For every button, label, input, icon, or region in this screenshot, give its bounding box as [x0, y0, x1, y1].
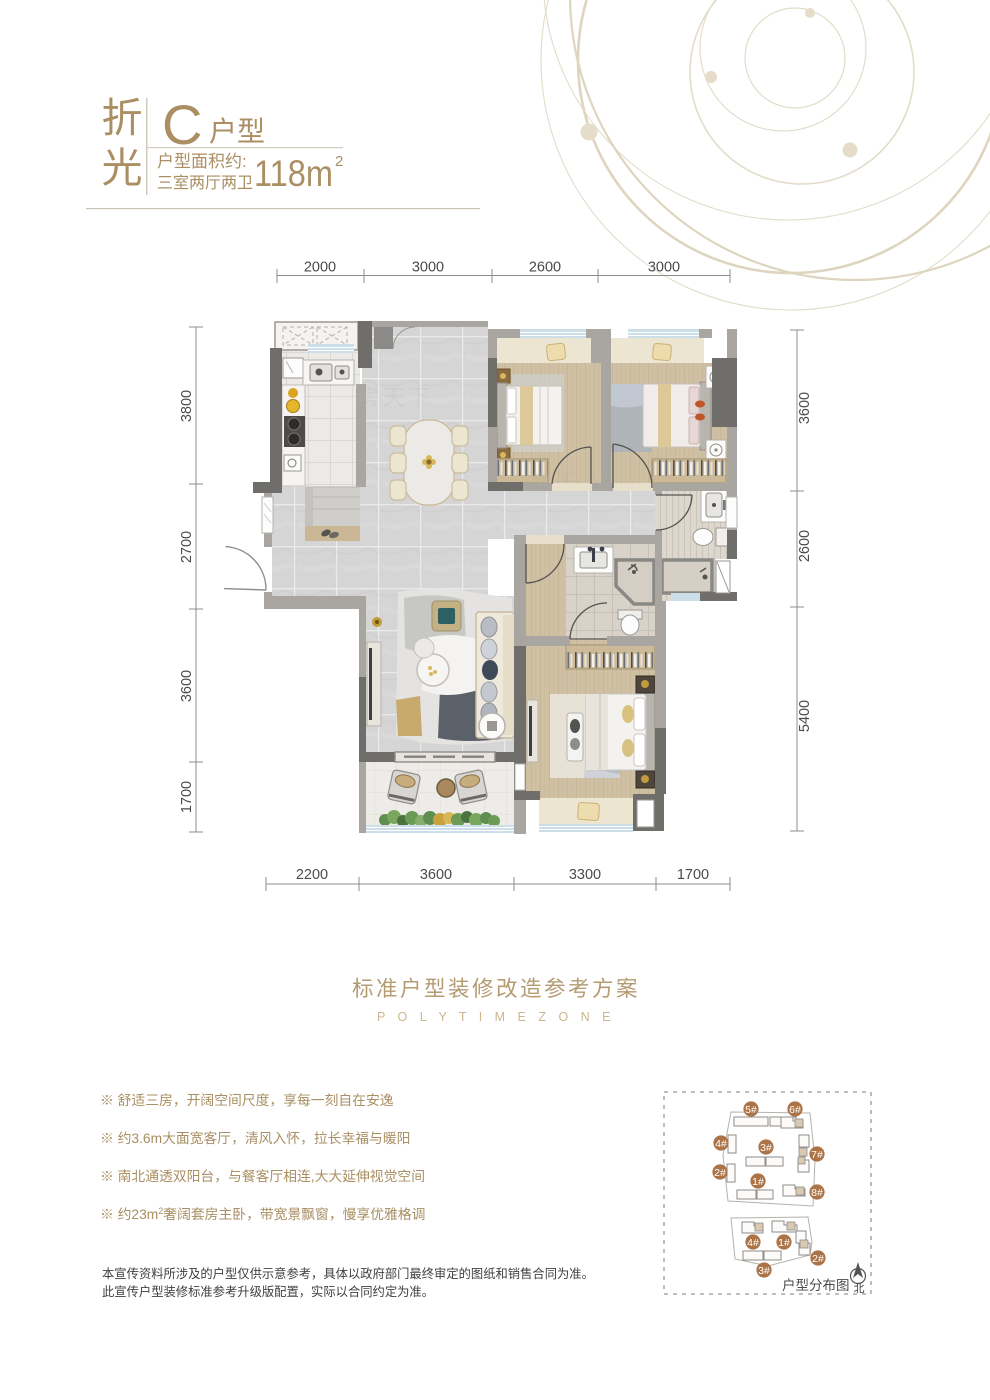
svg-text:2600: 2600 [529, 260, 561, 276]
svg-text:房天下: 房天下 [530, 470, 605, 495]
svg-text:标准户型装修改造参考方案: 标准户型装修改造参考方案 [352, 977, 640, 1001]
svg-text:C: C [162, 93, 202, 156]
svg-text:※ 舒适三房，开阔空间尺度，享每一刻自在安逸: ※ 舒适三房，开阔空间尺度，享每一刻自在安逸 [100, 1092, 394, 1108]
svg-text:户型: 户型 [209, 116, 265, 147]
svg-text:※ 南北通透双阳台，与餐客厅相连,大大延伸视觉空间: ※ 南北通透双阳台，与餐客厅相连,大大延伸视觉空间 [100, 1168, 425, 1184]
svg-text:1#: 1# [778, 1237, 790, 1249]
svg-text:8#: 8# [811, 1187, 823, 1199]
svg-text:3000: 3000 [648, 260, 680, 276]
svg-text:3#: 3# [758, 1265, 770, 1277]
svg-text:2#: 2# [812, 1253, 824, 1265]
svg-text:2: 2 [335, 153, 343, 170]
svg-text:户型分布图: 户型分布图 [782, 1277, 850, 1293]
svg-text:1700: 1700 [179, 781, 195, 813]
svg-text:三室两厅两卫: 三室两厅两卫 [157, 174, 253, 192]
svg-text:2000: 2000 [304, 260, 336, 276]
svg-text:3#: 3# [760, 1142, 772, 1154]
svg-text:北: 北 [854, 1282, 865, 1295]
svg-text:2200: 2200 [296, 867, 328, 883]
svg-text:3800: 3800 [179, 390, 195, 422]
svg-text:4#: 4# [715, 1138, 727, 1150]
svg-text:2#: 2# [714, 1167, 726, 1179]
svg-text:2700: 2700 [179, 531, 195, 563]
svg-text:3600: 3600 [420, 867, 452, 883]
svg-text:P O L Y T I M E Z O N E: P O L Y T I M E Z O N E [377, 1010, 615, 1024]
svg-text:5400: 5400 [797, 700, 813, 732]
svg-text:6#: 6# [789, 1104, 801, 1116]
svg-text:118m: 118m [254, 153, 333, 194]
svg-text:户型面积约:: 户型面积约: [157, 152, 247, 171]
svg-text:房天下: 房天下 [358, 385, 433, 410]
svg-text:光: 光 [102, 145, 143, 191]
svg-text:5#: 5# [745, 1104, 757, 1116]
svg-text:3300: 3300 [569, 867, 601, 883]
svg-text:3600: 3600 [797, 392, 813, 424]
svg-text:本宣传资料所涉及的户型仅供示意参考，具体以政府部门最终审定的: 本宣传资料所涉及的户型仅供示意参考，具体以政府部门最终审定的图纸和销售合同为准。 [102, 1266, 594, 1281]
svg-text:※ 约3.6m大面宽客厅，清风入怀，拉长幸福与暖阳: ※ 约3.6m大面宽客厅，清风入怀，拉长幸福与暖阳 [100, 1130, 410, 1146]
svg-text:2600: 2600 [797, 530, 813, 562]
svg-text:4#: 4# [747, 1237, 759, 1249]
svg-text:※ 约23m2奢阔套房主卧，带宽景飘窗，慢享优雅格调: ※ 约23m2奢阔套房主卧，带宽景飘窗，慢享优雅格调 [100, 1206, 425, 1222]
svg-text:折: 折 [102, 95, 143, 141]
svg-text:此宣传户型装修标准参考升级版配置，实际以合同约定为准。: 此宣传户型装修标准参考升级版配置，实际以合同约定为准。 [102, 1284, 434, 1299]
svg-text:3000: 3000 [412, 260, 444, 276]
svg-text:1#: 1# [752, 1176, 764, 1188]
svg-text:1700: 1700 [677, 867, 709, 883]
svg-text:3600: 3600 [179, 670, 195, 702]
svg-text:7#: 7# [811, 1149, 823, 1161]
